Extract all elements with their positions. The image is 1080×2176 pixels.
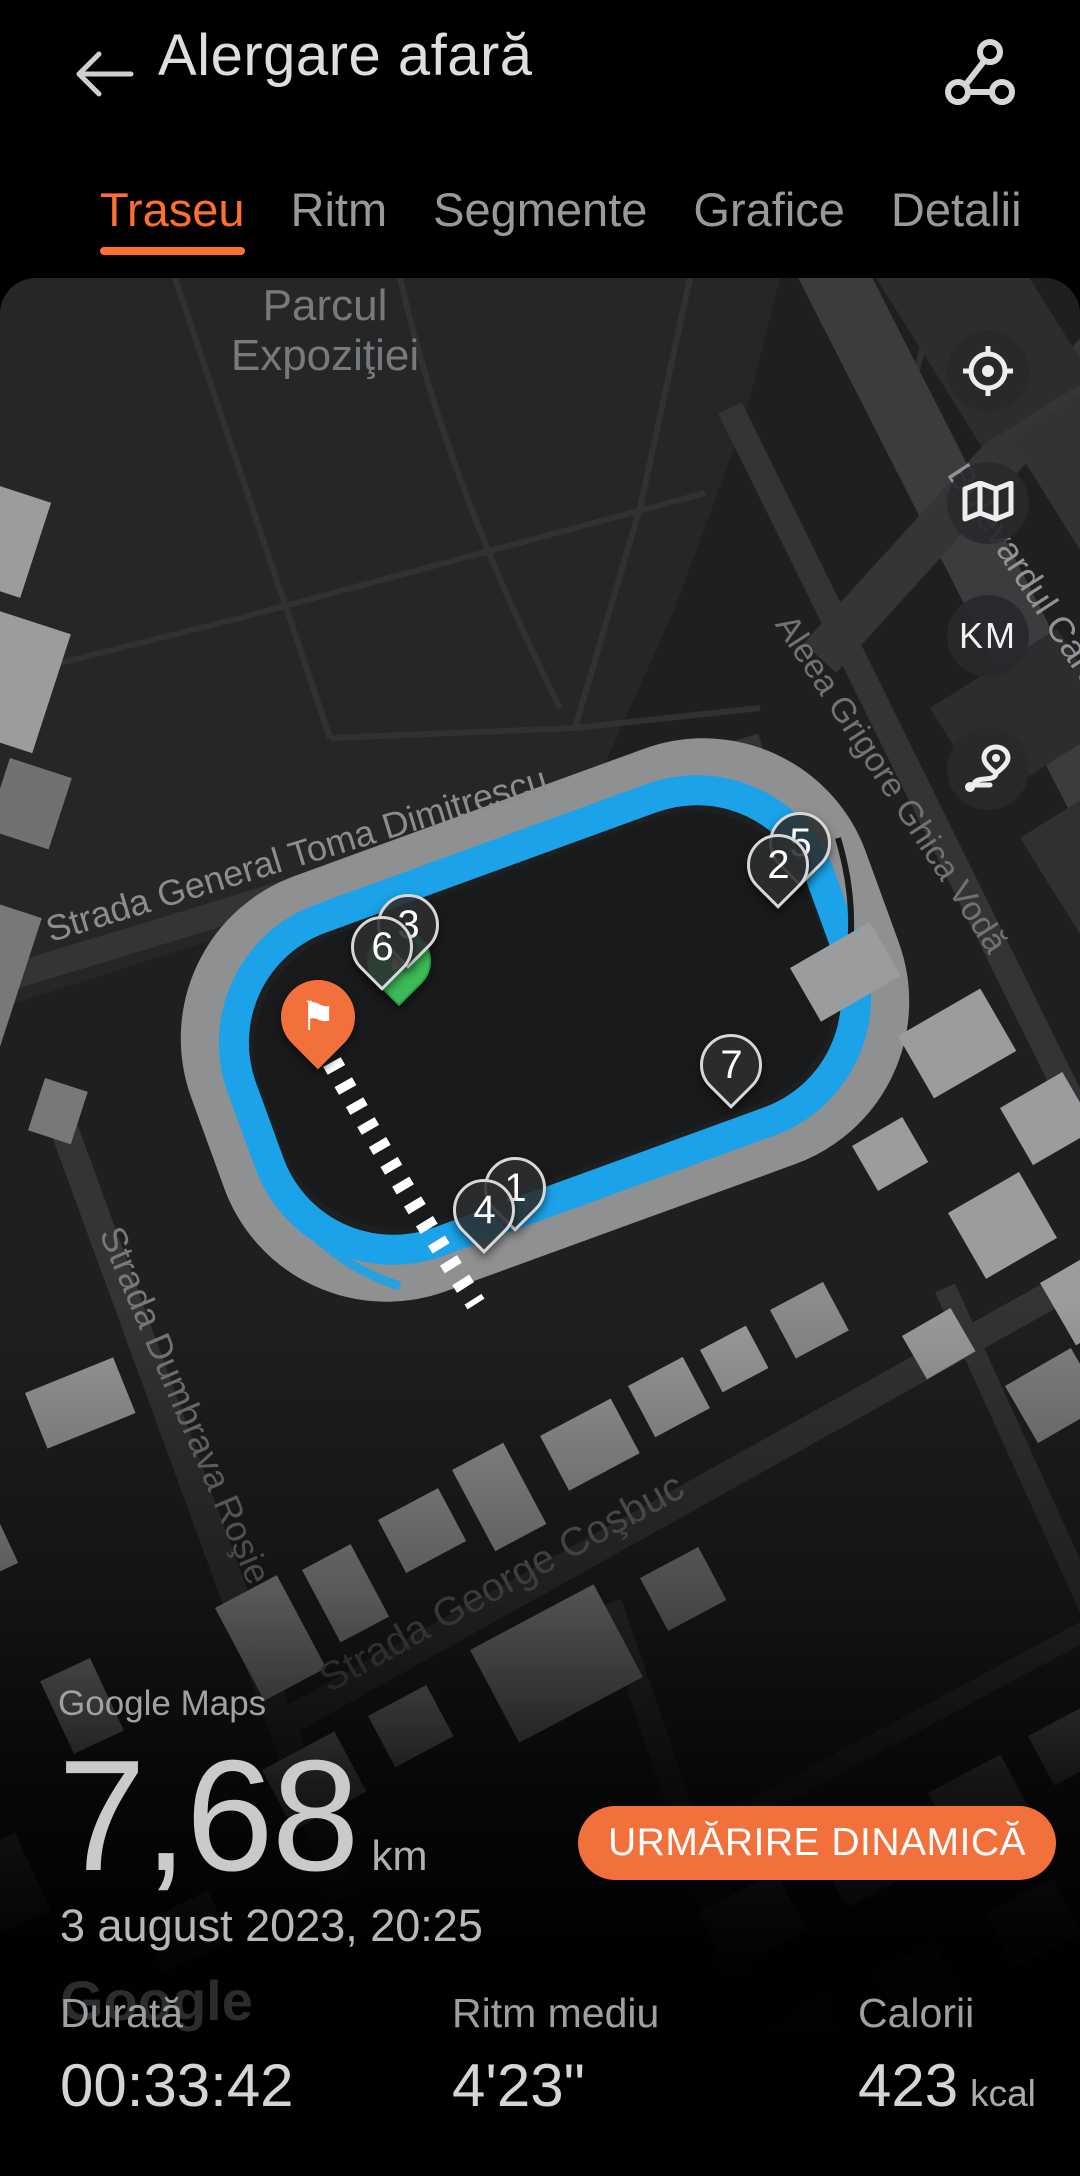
tab-segmente[interactable]: Segmente	[433, 182, 647, 255]
map-view[interactable]: Parcul Expoziţiei Strada General Toma Di…	[0, 278, 1080, 2162]
stat-pace-label: Ritm mediu	[452, 1990, 659, 2037]
stat-calories: Calorii 423 kcal	[858, 1990, 1036, 2120]
page-title: Alergare afară	[158, 22, 533, 89]
stat-duration-label: Durată	[60, 1990, 294, 2037]
finish-flag-icon: ⚑	[300, 994, 336, 1040]
share-route-button[interactable]	[936, 30, 1024, 118]
tab-detalii[interactable]: Detalii	[891, 182, 1022, 255]
back-arrow-icon	[73, 50, 135, 98]
distance-value: 7,68	[58, 1726, 358, 1907]
workout-date: 3 august 2023, 20:25	[60, 1900, 483, 1952]
tab-traseu[interactable]: Traseu	[100, 182, 245, 255]
workout-summary: 7,68 km URMĂRIRE DINAMICĂ 3 august 2023,…	[0, 278, 1080, 2162]
distance-block: 7,68 km	[58, 1726, 428, 1907]
header: Alergare afară	[0, 0, 1080, 190]
back-button[interactable]	[66, 36, 142, 112]
stat-calories-value: 423	[858, 2051, 958, 2120]
stat-calories-unit: kcal	[970, 2073, 1036, 2115]
tab-bar: Traseu Ritm Segmente Grafice Detalii	[100, 182, 1022, 255]
dynamic-tracking-label: URMĂRIRE DINAMICĂ	[608, 1821, 1026, 1865]
route-share-icon	[940, 34, 1020, 114]
distance-unit: km	[372, 1832, 428, 1880]
stat-pace-value: 4'23"	[452, 2051, 585, 2120]
stat-pace: Ritm mediu 4'23"	[452, 1990, 659, 2120]
tab-grafice[interactable]: Grafice	[693, 182, 845, 255]
stat-calories-label: Calorii	[858, 1990, 1036, 2037]
stat-duration-value: 00:33:42	[60, 2051, 294, 2120]
tab-ritm[interactable]: Ritm	[291, 182, 388, 255]
stat-duration: Durată 00:33:42	[60, 1990, 294, 2120]
dynamic-tracking-button[interactable]: URMĂRIRE DINAMICĂ	[578, 1806, 1056, 1880]
